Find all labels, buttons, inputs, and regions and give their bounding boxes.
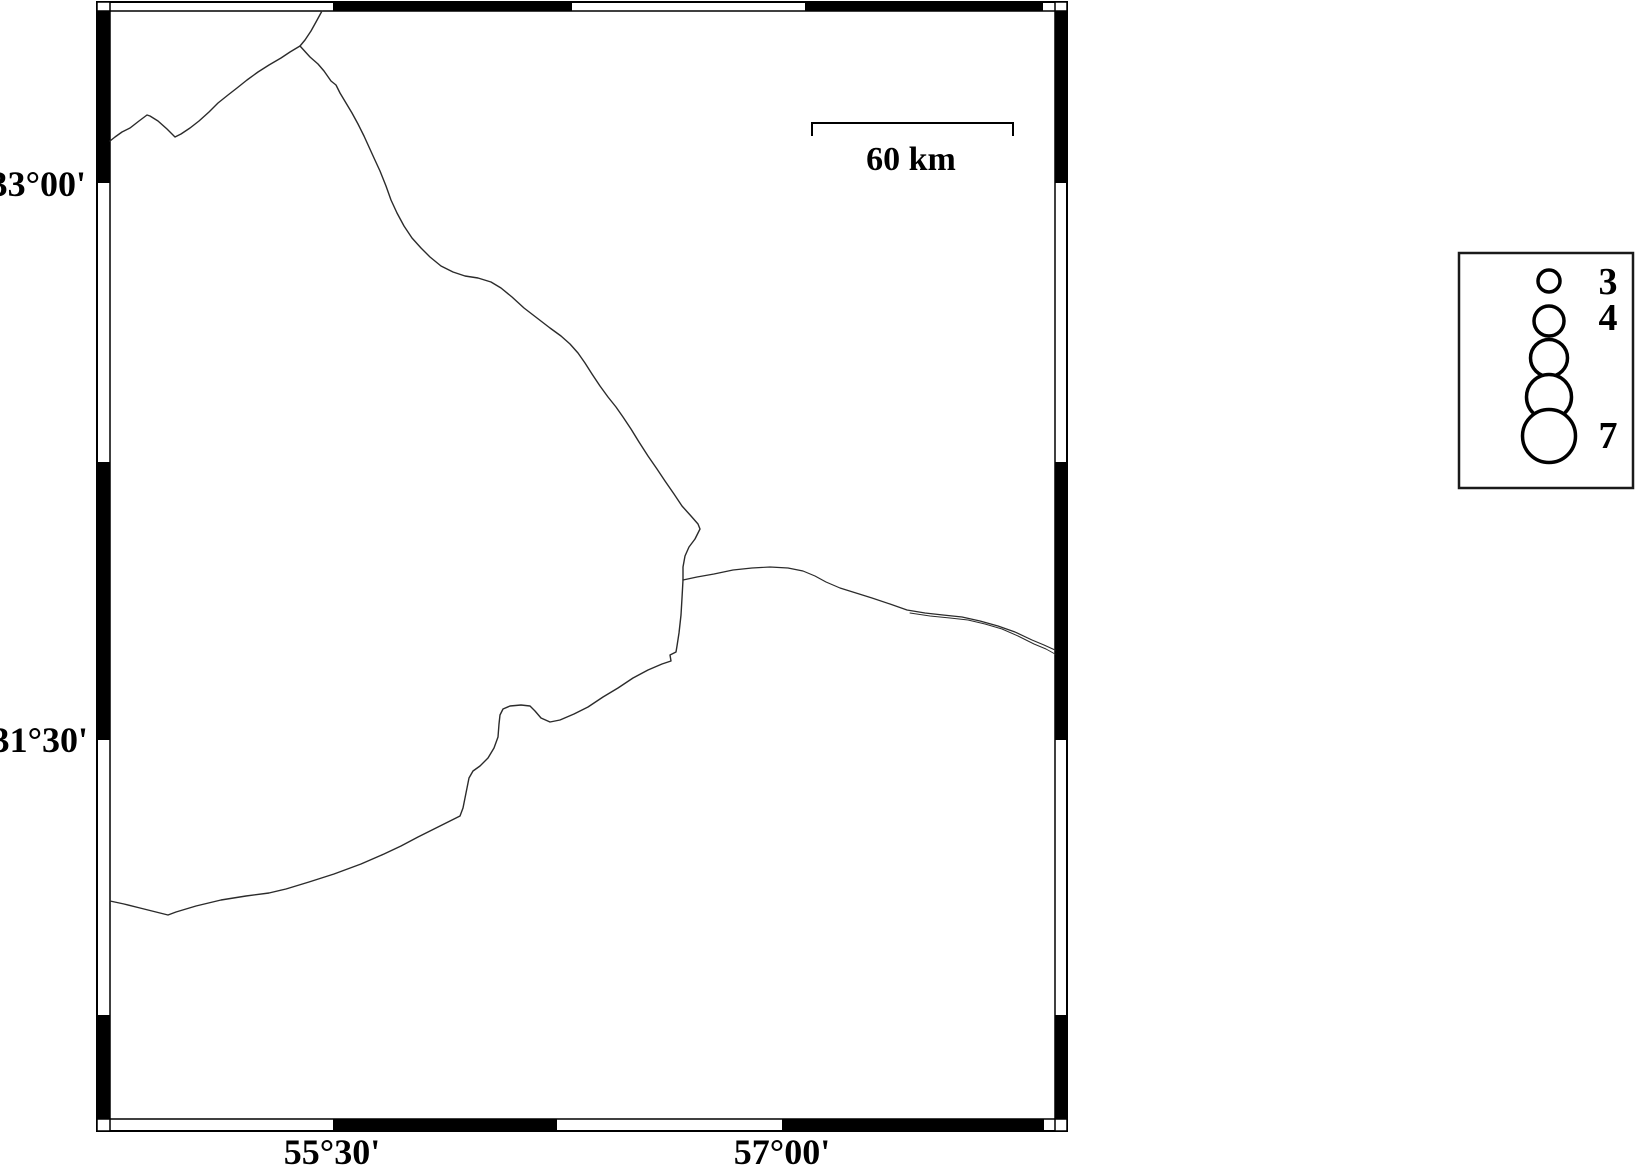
frame-corner-square [97, 2, 110, 11]
magnitude-circle [1531, 340, 1568, 377]
frame-tick-segment [1055, 11, 1067, 183]
magnitude-label: 7 [1599, 415, 1618, 457]
map-frame [0, 0, 1639, 1168]
frame-corner-square [1055, 1119, 1067, 1131]
frame-tick-segment [1055, 462, 1067, 740]
magnitude-circle [1523, 410, 1576, 463]
frame-tick-segment [97, 11, 110, 183]
frame-tick-segment [97, 462, 110, 740]
frame-tick-segment [805, 2, 1043, 11]
frame-tick-segment [333, 1119, 557, 1131]
magnitude-label: 4 [1599, 297, 1618, 339]
magnitude-circle [1534, 306, 1564, 336]
longitude-label: 57°00' [734, 1132, 830, 1168]
frame-tick-segment [782, 1119, 1044, 1131]
latitude-label: 31°30' [0, 720, 88, 760]
map-figure: 33°00'31°30' 55°30'57°00' 60 km 347 [0, 0, 1639, 1168]
scale-bar-label: 60 km [866, 141, 956, 178]
magnitude-circle [1538, 270, 1560, 292]
latitude-label: 33°00' [0, 164, 86, 204]
frame-corner-square [1055, 2, 1067, 11]
frame-corner-square [97, 1119, 110, 1131]
magnitude-legend: 347 [1459, 253, 1633, 488]
frame-tick-segment [97, 1015, 110, 1119]
longitude-label: 55°30' [284, 1132, 380, 1168]
frame-tick-segment [333, 2, 572, 11]
frame-tick-segment [1055, 1015, 1067, 1119]
map-svg: 33°00'31°30' 55°30'57°00' 60 km 347 [0, 0, 1639, 1168]
